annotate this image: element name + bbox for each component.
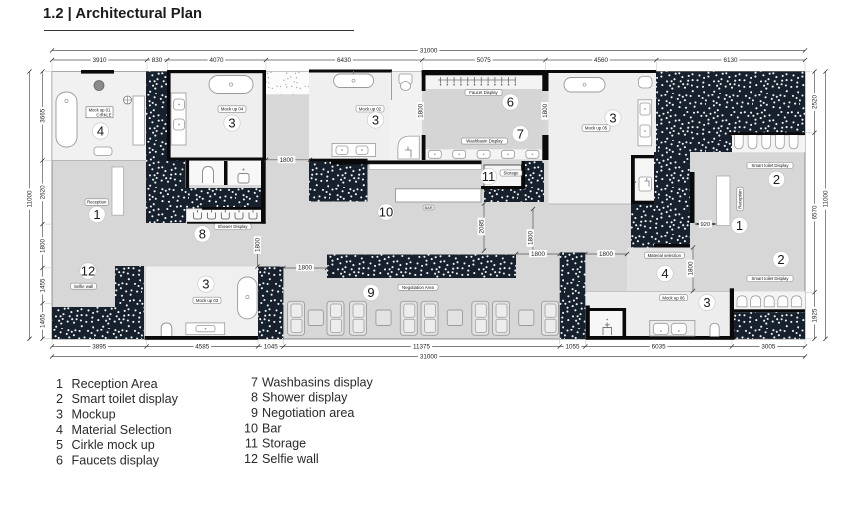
svg-text:11: 11: [245, 437, 258, 451]
svg-text:6570: 6570: [812, 205, 819, 220]
svg-text:1800: 1800: [527, 231, 534, 246]
svg-text:31000: 31000: [420, 48, 438, 55]
svg-text:Smart toilet Display: Smart toilet Display: [751, 163, 789, 168]
svg-text:Negotiation area: Negotiation area: [262, 406, 354, 420]
svg-text:2: 2: [773, 172, 780, 187]
svg-text:7: 7: [251, 375, 258, 389]
svg-text:2: 2: [56, 392, 63, 406]
svg-text:Reception: Reception: [738, 189, 743, 209]
svg-text:2: 2: [777, 252, 784, 267]
svg-text:1800: 1800: [687, 261, 694, 276]
svg-text:4585: 4585: [195, 344, 210, 351]
svg-text:2085: 2085: [478, 219, 485, 234]
svg-text:5075: 5075: [477, 57, 492, 64]
svg-text:1455: 1455: [40, 278, 47, 293]
svg-text:6130: 6130: [723, 57, 738, 64]
svg-text:830: 830: [152, 57, 163, 64]
svg-text:Faucet Display: Faucet Display: [469, 90, 498, 95]
svg-text:3665: 3665: [40, 108, 47, 123]
svg-text:11: 11: [482, 169, 496, 184]
svg-text:Mock up 06: Mock up 06: [662, 295, 685, 300]
svg-text:1800: 1800: [254, 238, 261, 253]
svg-text:1465: 1465: [40, 314, 47, 329]
svg-text:1800: 1800: [542, 103, 549, 118]
svg-text:4070: 4070: [209, 57, 224, 64]
svg-text:Cirkle mock up: Cirkle mock up: [72, 438, 155, 452]
svg-text:Selfie wall: Selfie wall: [74, 284, 93, 289]
svg-text:Mock up 04: Mock up 04: [221, 107, 244, 112]
svg-text:3005: 3005: [761, 344, 776, 351]
svg-text:1800: 1800: [418, 103, 425, 118]
svg-text:3: 3: [228, 116, 235, 131]
svg-text:10: 10: [244, 421, 258, 435]
svg-text:Reception: Reception: [87, 200, 107, 205]
svg-text:9: 9: [367, 285, 374, 300]
svg-text:6035: 6035: [652, 344, 667, 351]
svg-text:Shower display: Shower display: [262, 391, 348, 405]
svg-text:1: 1: [56, 377, 63, 391]
svg-text:31000: 31000: [420, 354, 438, 361]
svg-text:Smart toilet display: Smart toilet display: [72, 392, 179, 406]
svg-text:1925: 1925: [812, 308, 819, 323]
svg-text:11000: 11000: [823, 190, 830, 208]
svg-text:Washbasin Display: Washbasin Display: [466, 139, 503, 144]
svg-text:3895: 3895: [92, 344, 107, 351]
svg-text:6: 6: [56, 454, 63, 468]
svg-text:1800: 1800: [531, 251, 546, 258]
svg-text:3: 3: [372, 113, 379, 128]
svg-text:Mock up 03: Mock up 03: [196, 298, 219, 303]
svg-text:3: 3: [609, 111, 616, 126]
svg-text:Washbasins display: Washbasins display: [262, 375, 374, 389]
svg-text:8: 8: [251, 391, 258, 405]
svg-text:4: 4: [97, 124, 104, 139]
svg-text:6: 6: [507, 95, 514, 110]
svg-text:5: 5: [56, 438, 63, 452]
svg-text:1.2 | Architectural Plan: 1.2 | Architectural Plan: [43, 6, 202, 22]
svg-text:1800: 1800: [298, 265, 313, 272]
svg-text:Faucets display: Faucets display: [72, 454, 160, 468]
svg-text:1: 1: [736, 218, 743, 233]
svg-text:7: 7: [517, 126, 524, 141]
svg-text:3: 3: [202, 277, 209, 292]
svg-text:Storage: Storage: [503, 171, 519, 176]
svg-text:4560: 4560: [594, 57, 609, 64]
svg-text:3: 3: [56, 408, 63, 422]
svg-text:Shower Display: Shower Display: [218, 224, 249, 229]
svg-text:4: 4: [56, 423, 63, 437]
svg-text:3: 3: [703, 295, 710, 310]
svg-text:1: 1: [93, 207, 100, 222]
svg-text:9: 9: [251, 406, 258, 420]
svg-text:12: 12: [244, 452, 258, 466]
svg-text:11375: 11375: [413, 344, 431, 351]
svg-text:8: 8: [199, 227, 206, 242]
svg-text:Mock up 05: Mock up 05: [585, 126, 608, 131]
svg-text:Material Selection: Material Selection: [72, 423, 172, 437]
svg-text:4: 4: [661, 266, 668, 281]
svg-text:Mock up 02: Mock up 02: [359, 106, 382, 111]
svg-text:Bar: Bar: [262, 421, 282, 435]
svg-text:6430: 6430: [337, 57, 352, 64]
svg-text:11000: 11000: [26, 190, 33, 208]
svg-text:BAR: BAR: [424, 205, 432, 210]
svg-text:CIRKLE: CIRKLE: [96, 113, 111, 118]
svg-text:920: 920: [700, 222, 710, 228]
svg-text:Mockup: Mockup: [72, 408, 116, 422]
svg-text:Reception Area: Reception Area: [72, 377, 158, 391]
svg-text:Storage: Storage: [262, 437, 306, 451]
svg-text:1045: 1045: [264, 344, 279, 351]
svg-text:1800: 1800: [279, 157, 294, 164]
svg-text:Smart toilet Display: Smart toilet Display: [751, 276, 789, 281]
svg-text:3910: 3910: [92, 57, 107, 64]
svg-text:Material selection: Material selection: [648, 253, 682, 258]
svg-text:2620: 2620: [39, 185, 46, 200]
svg-text:2520: 2520: [812, 95, 819, 110]
svg-text:Selfie wall: Selfie wall: [262, 452, 319, 466]
svg-text:12: 12: [81, 264, 95, 279]
svg-text:10: 10: [379, 205, 393, 220]
svg-text:Negotiation Area: Negotiation Area: [402, 285, 434, 290]
svg-text:1055: 1055: [565, 344, 580, 351]
svg-text:1800: 1800: [599, 251, 614, 258]
svg-text:1800: 1800: [39, 239, 46, 254]
